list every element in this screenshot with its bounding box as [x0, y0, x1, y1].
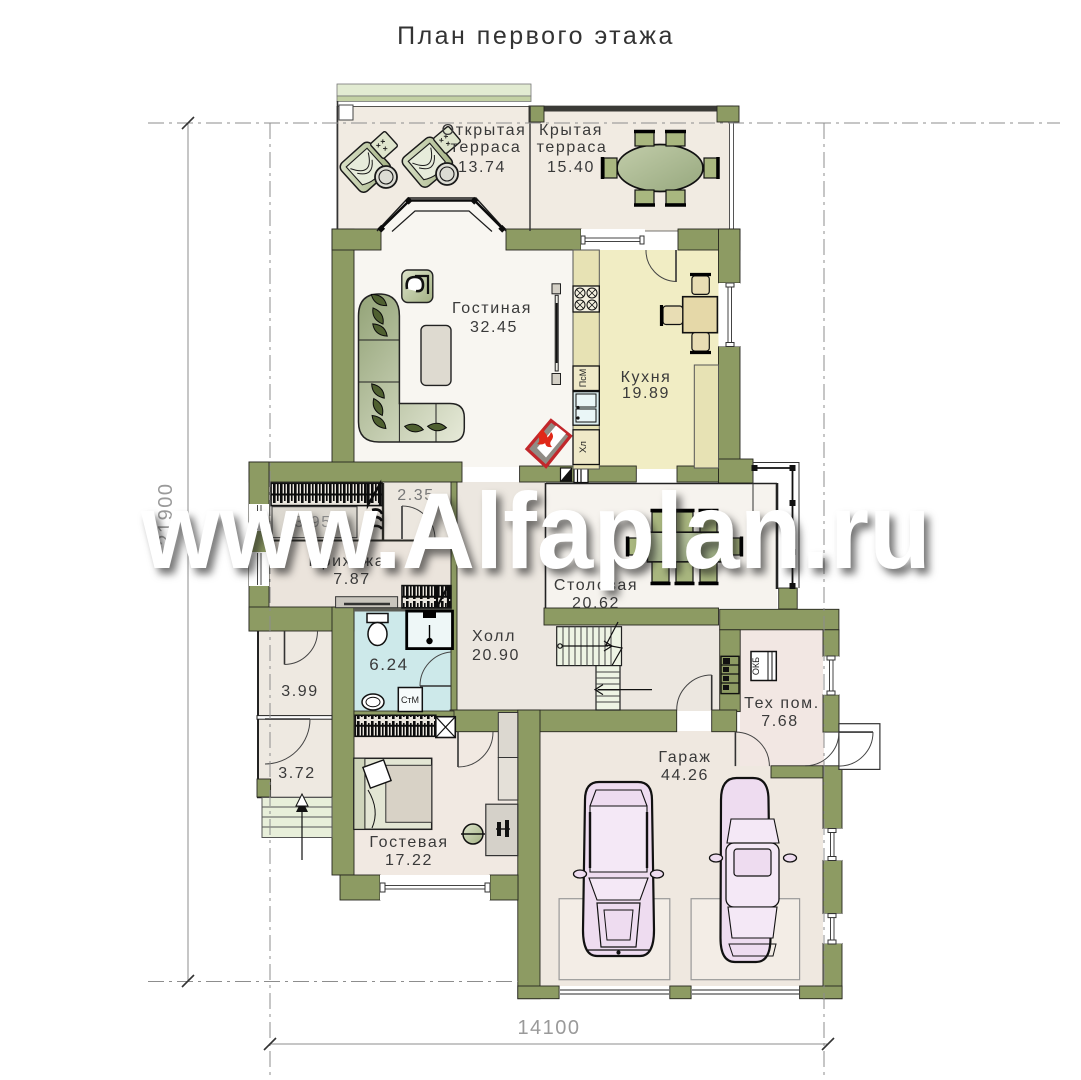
svg-text:32.45: 32.45 [470, 319, 518, 336]
svg-text:3.72: 3.72 [278, 765, 316, 782]
svg-text:6.24: 6.24 [369, 655, 409, 674]
svg-text:Хл: Хл [578, 441, 589, 453]
svg-text:19.89: 19.89 [622, 385, 670, 402]
svg-text:терраса: терраса [537, 139, 608, 156]
svg-text:СтМ: СтМ [401, 695, 419, 705]
svg-text:План первого этажа: План первого этажа [397, 22, 675, 50]
svg-text:17.22: 17.22 [385, 852, 433, 869]
svg-text:Гостиная: Гостиная [452, 300, 532, 317]
svg-text:ОКБ: ОКБ [751, 657, 761, 675]
svg-text:13.74: 13.74 [458, 159, 506, 176]
svg-text:терраса: терраса [451, 139, 522, 156]
svg-text:Крытая: Крытая [539, 122, 603, 139]
svg-text:20.90: 20.90 [472, 647, 520, 664]
svg-text:15.40: 15.40 [547, 159, 595, 176]
svg-text:14100: 14100 [517, 1017, 580, 1039]
svg-text:Открытая: Открытая [442, 122, 527, 139]
svg-text:3.99: 3.99 [281, 683, 319, 700]
svg-text:7.68: 7.68 [761, 713, 799, 730]
svg-text:44.26: 44.26 [661, 767, 709, 784]
svg-text:ПсМ: ПсМ [578, 369, 588, 387]
svg-text:Гостевая: Гостевая [369, 834, 448, 851]
svg-text:Холл: Холл [472, 628, 516, 645]
svg-text:Кухня: Кухня [621, 369, 672, 386]
svg-text:Гараж: Гараж [658, 749, 711, 766]
svg-text:20.62: 20.62 [572, 595, 620, 612]
svg-text:Тех пом.: Тех пом. [744, 695, 820, 712]
svg-text:www.Alfaplan.ru: www.Alfaplan.ru [140, 470, 931, 591]
